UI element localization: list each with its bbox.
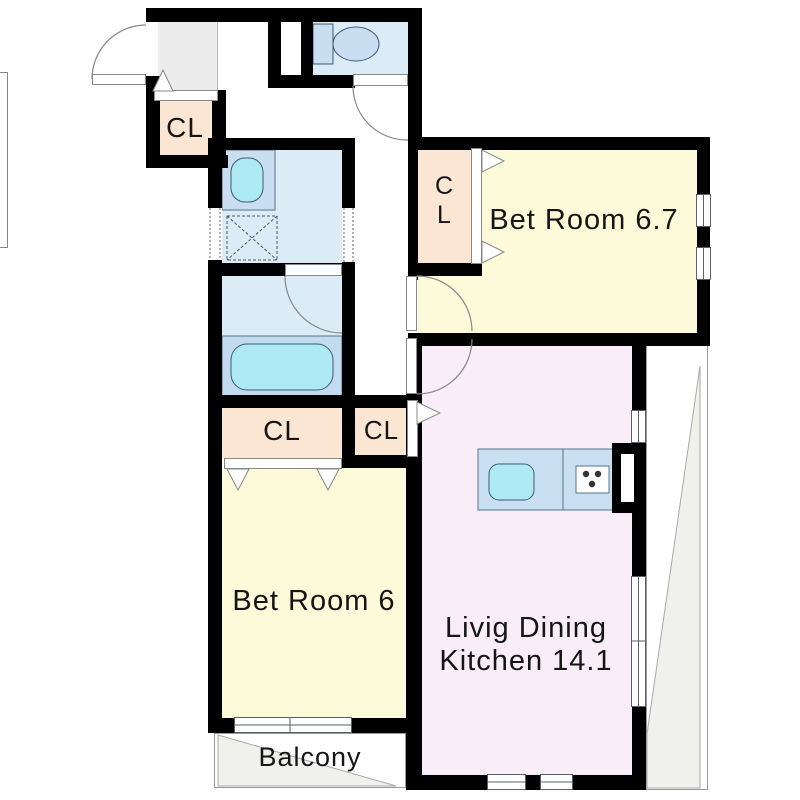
window-mullions xyxy=(235,195,704,782)
bathroom-door-arc xyxy=(285,276,342,333)
washroom-opening xyxy=(208,208,355,262)
bedroom-1-closet-label: C L xyxy=(418,172,471,230)
entrance-door-arc xyxy=(92,25,146,79)
closet-door-marker xyxy=(227,469,249,490)
ldk-label: Livig Dining Kitchen 14.1 xyxy=(420,612,632,678)
toilet-door-arc xyxy=(353,86,408,140)
closet-door-marker xyxy=(482,241,504,263)
entrance-closet-label: CL xyxy=(158,112,212,144)
ldk-door-arc xyxy=(417,339,472,394)
closet-door-marker xyxy=(417,402,440,424)
floor-plan: Bet Room 6.7 Bet Room 6 Livig Dining Kit… xyxy=(0,0,800,800)
symbols-layer xyxy=(0,0,800,800)
bedroom-2-closet-label: CL xyxy=(222,415,342,447)
bedroom-1-door-arc xyxy=(417,276,472,331)
hall-closet-label: CL xyxy=(355,415,408,446)
balcony-label: Balcony xyxy=(214,742,406,773)
bedroom-1-label: Bet Room 6.7 xyxy=(471,204,697,237)
bedroom-2-label: Bet Room 6 xyxy=(222,585,406,618)
closet-door-marker xyxy=(317,469,339,490)
entrance-step-marker xyxy=(153,70,173,91)
ldk-label-line-2: Kitchen 14.1 xyxy=(420,645,632,678)
closet-door-marker xyxy=(482,150,504,172)
ldk-label-line-1: Livig Dining xyxy=(420,612,632,645)
